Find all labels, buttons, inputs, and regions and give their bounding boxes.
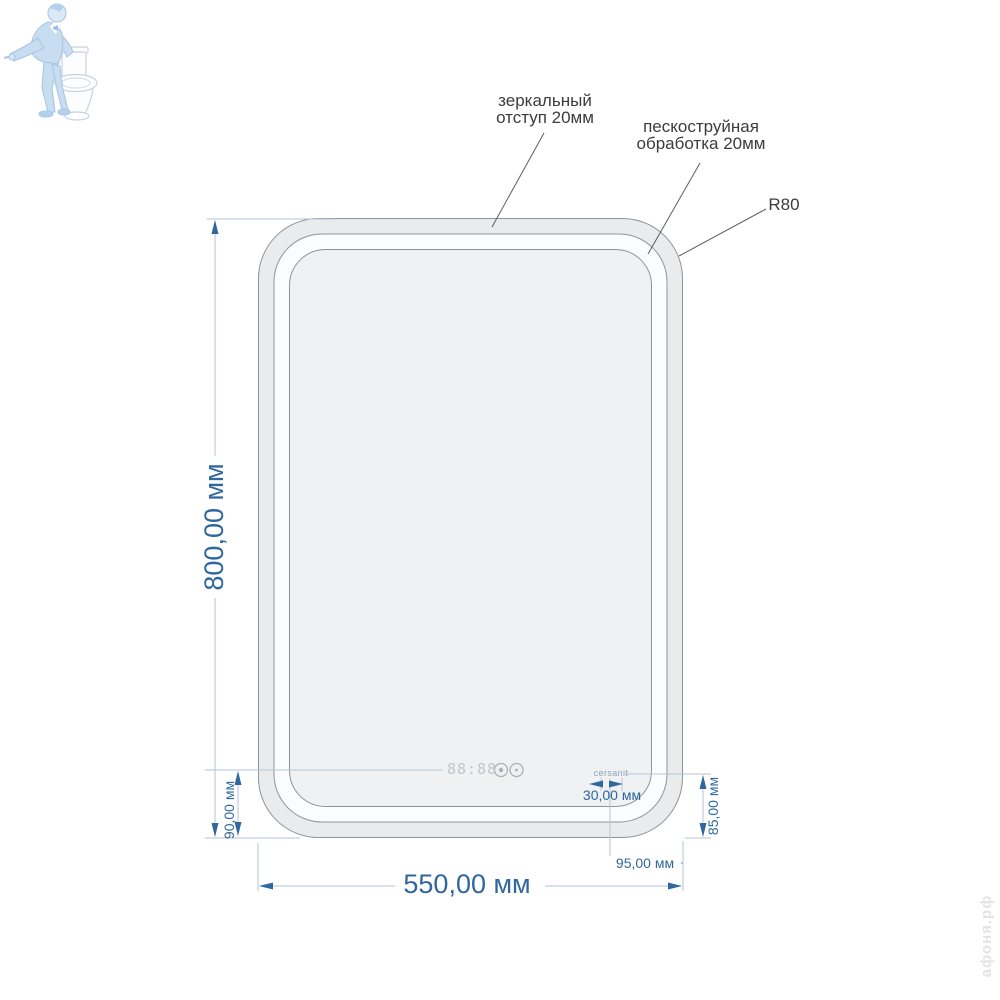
leader-mirror-offset — [492, 133, 544, 227]
plumber-watermark-figure — [0, 0, 100, 122]
site-watermark: афоня.рф — [978, 876, 996, 996]
label-radius: R80 — [762, 196, 806, 213]
plumber-shoe-icon — [39, 111, 53, 117]
label-mirror-offset: зеркальный отступ 20мм — [470, 92, 620, 126]
arrow-width-right — [668, 883, 682, 890]
dim-height-label: 800,00 мм — [201, 417, 231, 637]
plumber-hand — [9, 54, 15, 60]
arrow-height-bottom — [212, 823, 219, 837]
drawing-linework — [0, 0, 1000, 1000]
arrow-width-left — [259, 883, 273, 890]
touch-button-dot-icon — [499, 768, 503, 772]
touch-button-dot-icon — [515, 769, 518, 772]
clock-display: 88:88 — [447, 761, 497, 777]
mirror-outlines — [259, 219, 683, 838]
dim-width-label: 550,00 мм — [367, 871, 567, 898]
plumber-shoe-icon — [58, 109, 70, 115]
label-sandblast: пескоструйная обработка 20мм — [626, 118, 776, 152]
dim-logo-width-label: 30,00 мм — [572, 788, 652, 802]
leader-sandblast — [648, 163, 700, 254]
dim-clock-bottom-label: 90,00 мм — [222, 770, 238, 850]
mirror-sandblast-outline — [290, 250, 652, 807]
dim-logo-bottom-label: 85,00 мм — [706, 766, 722, 846]
dim-logo-right-label: 95,00 мм — [609, 856, 681, 870]
cersanit-logo: cersanit — [581, 769, 641, 778]
leader-radius — [679, 209, 766, 256]
arrow-height-top — [212, 220, 219, 234]
technical-drawing-canvas: зеркальный отступ 20мм пескоструйная обр… — [0, 0, 1000, 1000]
